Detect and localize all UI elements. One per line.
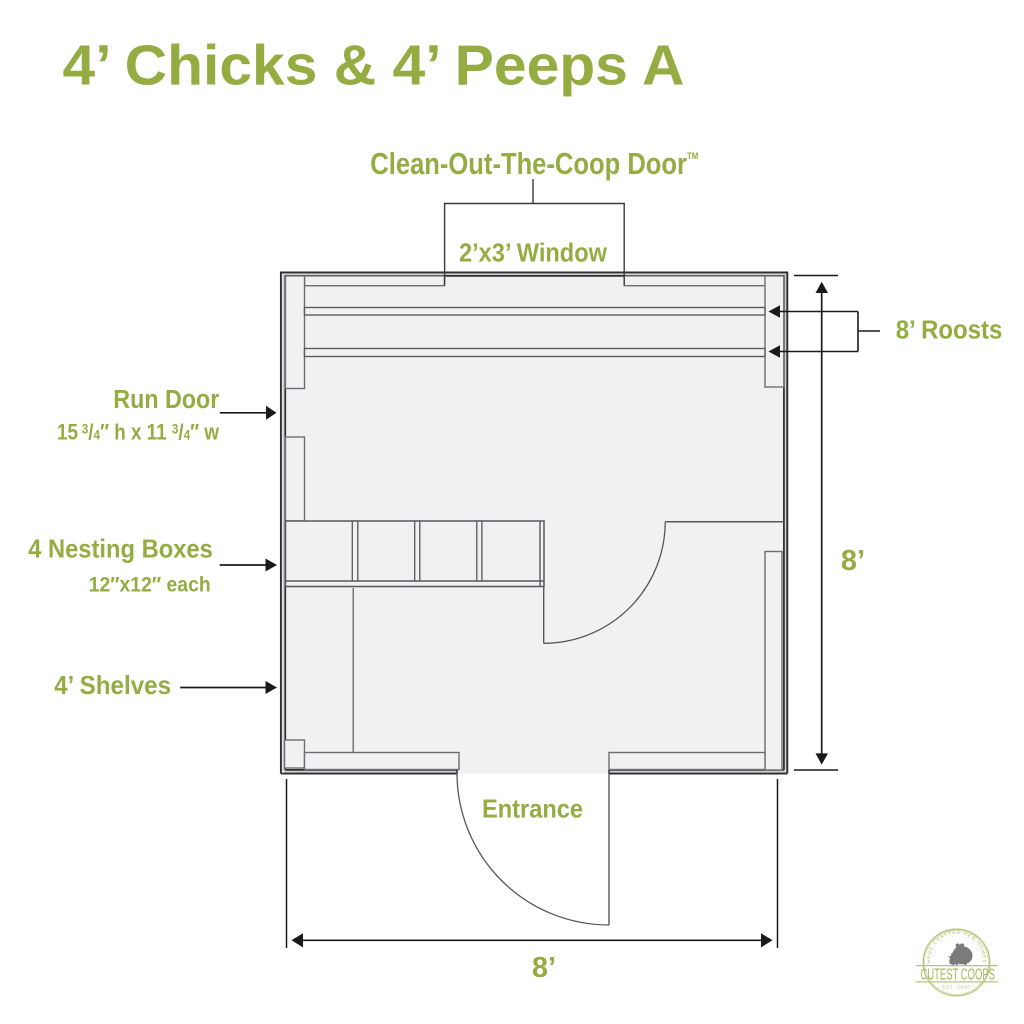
svg-text:4 Nesting Boxes: 4 Nesting Boxes [28, 536, 213, 564]
svg-text:Clean-Out-The-Coop DoorTM: Clean-Out-The-Coop DoorTM [370, 146, 698, 181]
svg-text:12″x12″ each: 12″x12″ each [89, 573, 211, 597]
svg-text:4’ Shelves: 4’ Shelves [54, 672, 171, 700]
svg-text:EST. 2015: EST. 2015 [942, 985, 970, 990]
svg-text:8’: 8’ [841, 545, 865, 577]
svg-text:15 3/4″ h x 11 3/4″ w: 15 3/4″ h x 11 3/4″ w [57, 419, 219, 444]
svg-text:Entrance: Entrance [482, 795, 583, 823]
svg-text:8’: 8’ [532, 952, 556, 984]
svg-text:8’ Roosts: 8’ Roosts [896, 317, 1003, 345]
svg-text:4’ Chicks & 4’ Peeps A: 4’ Chicks & 4’ Peeps A [63, 34, 685, 98]
svg-text:2’x3’ Window: 2’x3’ Window [459, 240, 607, 268]
svg-text:Run Door: Run Door [113, 386, 219, 414]
svg-text:CUTEST COOPS: CUTEST COOPS [920, 966, 995, 983]
